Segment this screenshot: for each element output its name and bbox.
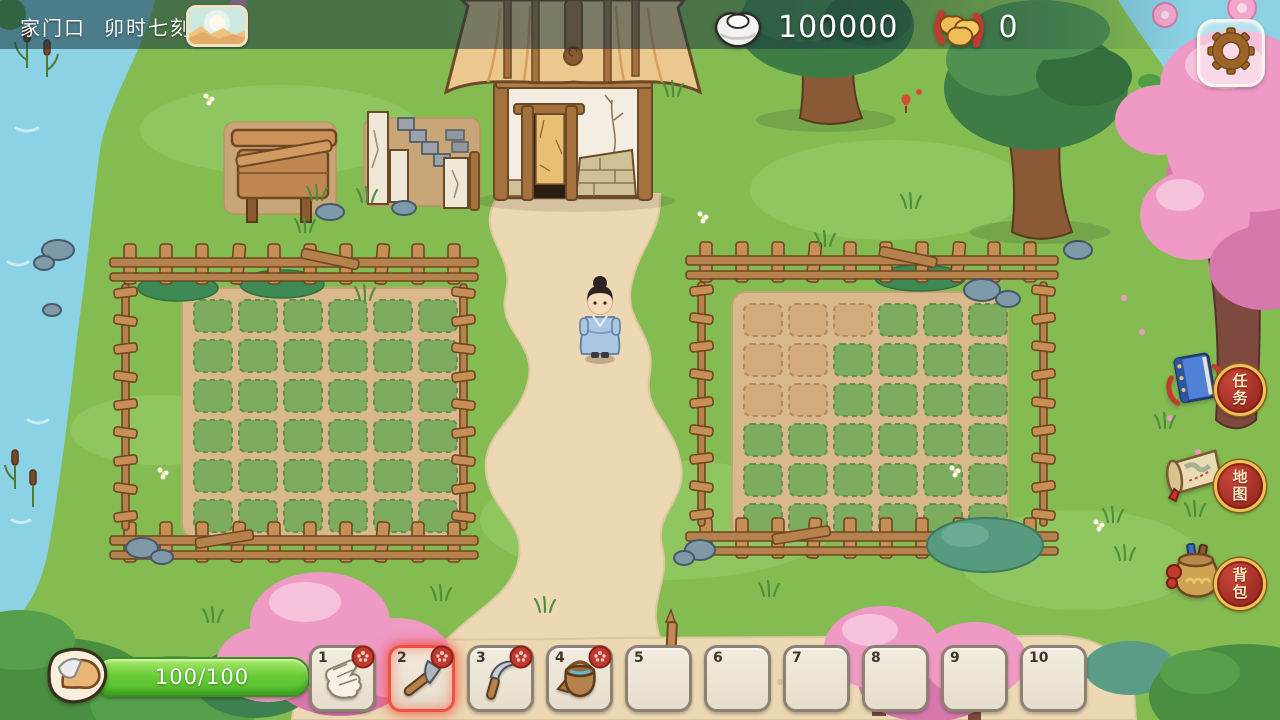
menu-bag-button[interactable]: 背包	[1162, 536, 1268, 612]
top-status-bar: 家门口 卯时七刻	[0, 0, 1280, 49]
hotbar-slot-2[interactable]: 2	[388, 645, 455, 712]
game-screen: 家门口 卯时七刻 1000000 任务地图背包 100/100 1234567	[0, 0, 1280, 720]
hotbar-slot-8[interactable]: 8	[862, 645, 929, 712]
silver-ingot-icon	[712, 4, 764, 50]
currency-gold-value: 0	[999, 10, 1019, 45]
hotbar-slot-1[interactable]: 1	[309, 645, 376, 712]
slot-number: 6	[713, 650, 723, 666]
stamina-widget: 100/100	[44, 644, 314, 710]
slot-number: 5	[634, 650, 644, 666]
slot-number: 9	[950, 650, 960, 666]
arm-strength-icon	[44, 644, 112, 708]
lock-badge-icon	[588, 645, 612, 669]
gear-icon	[1207, 27, 1255, 79]
hotbar: 12345678910	[309, 645, 1099, 712]
slot-number: 8	[871, 650, 881, 666]
hotbar-slot-5[interactable]: 5	[625, 645, 692, 712]
stamina-bar: 100/100	[94, 657, 310, 697]
sunrise-weather-icon[interactable]	[186, 5, 248, 47]
game-world[interactable]	[0, 0, 1280, 720]
menu-map-label: 地图	[1214, 460, 1266, 512]
lock-badge-icon	[430, 645, 454, 669]
menu-bag-label: 背包	[1214, 558, 1266, 610]
lock-badge-icon	[509, 645, 533, 669]
location-label: 家门口	[20, 12, 86, 41]
menu-tasks-button[interactable]: 任务	[1162, 342, 1268, 418]
hotbar-slot-4[interactable]: 4	[546, 645, 613, 712]
time-label: 卯时七刻	[104, 12, 192, 41]
menu-map-button[interactable]: 地图	[1162, 438, 1268, 514]
slot-number: 7	[792, 650, 802, 666]
slot-number: 10	[1029, 650, 1048, 666]
hotbar-slot-10[interactable]: 10	[1020, 645, 1087, 712]
lock-badge-icon	[351, 645, 375, 669]
currency-gold: 0	[933, 4, 1019, 50]
hotbar-slot-3[interactable]: 3	[467, 645, 534, 712]
currency-bar: 1000000	[712, 4, 1019, 50]
hotbar-slot-7[interactable]: 7	[783, 645, 850, 712]
hotbar-slot-6[interactable]: 6	[704, 645, 771, 712]
hotbar-slot-9[interactable]: 9	[941, 645, 1008, 712]
settings-button[interactable]	[1197, 19, 1265, 87]
currency-silver-value: 100000	[778, 10, 899, 45]
menu-tasks-label: 任务	[1214, 364, 1266, 416]
currency-silver: 100000	[712, 4, 899, 50]
stamina-value: 100/100	[155, 665, 249, 689]
gold-ingot-icon	[933, 4, 985, 50]
